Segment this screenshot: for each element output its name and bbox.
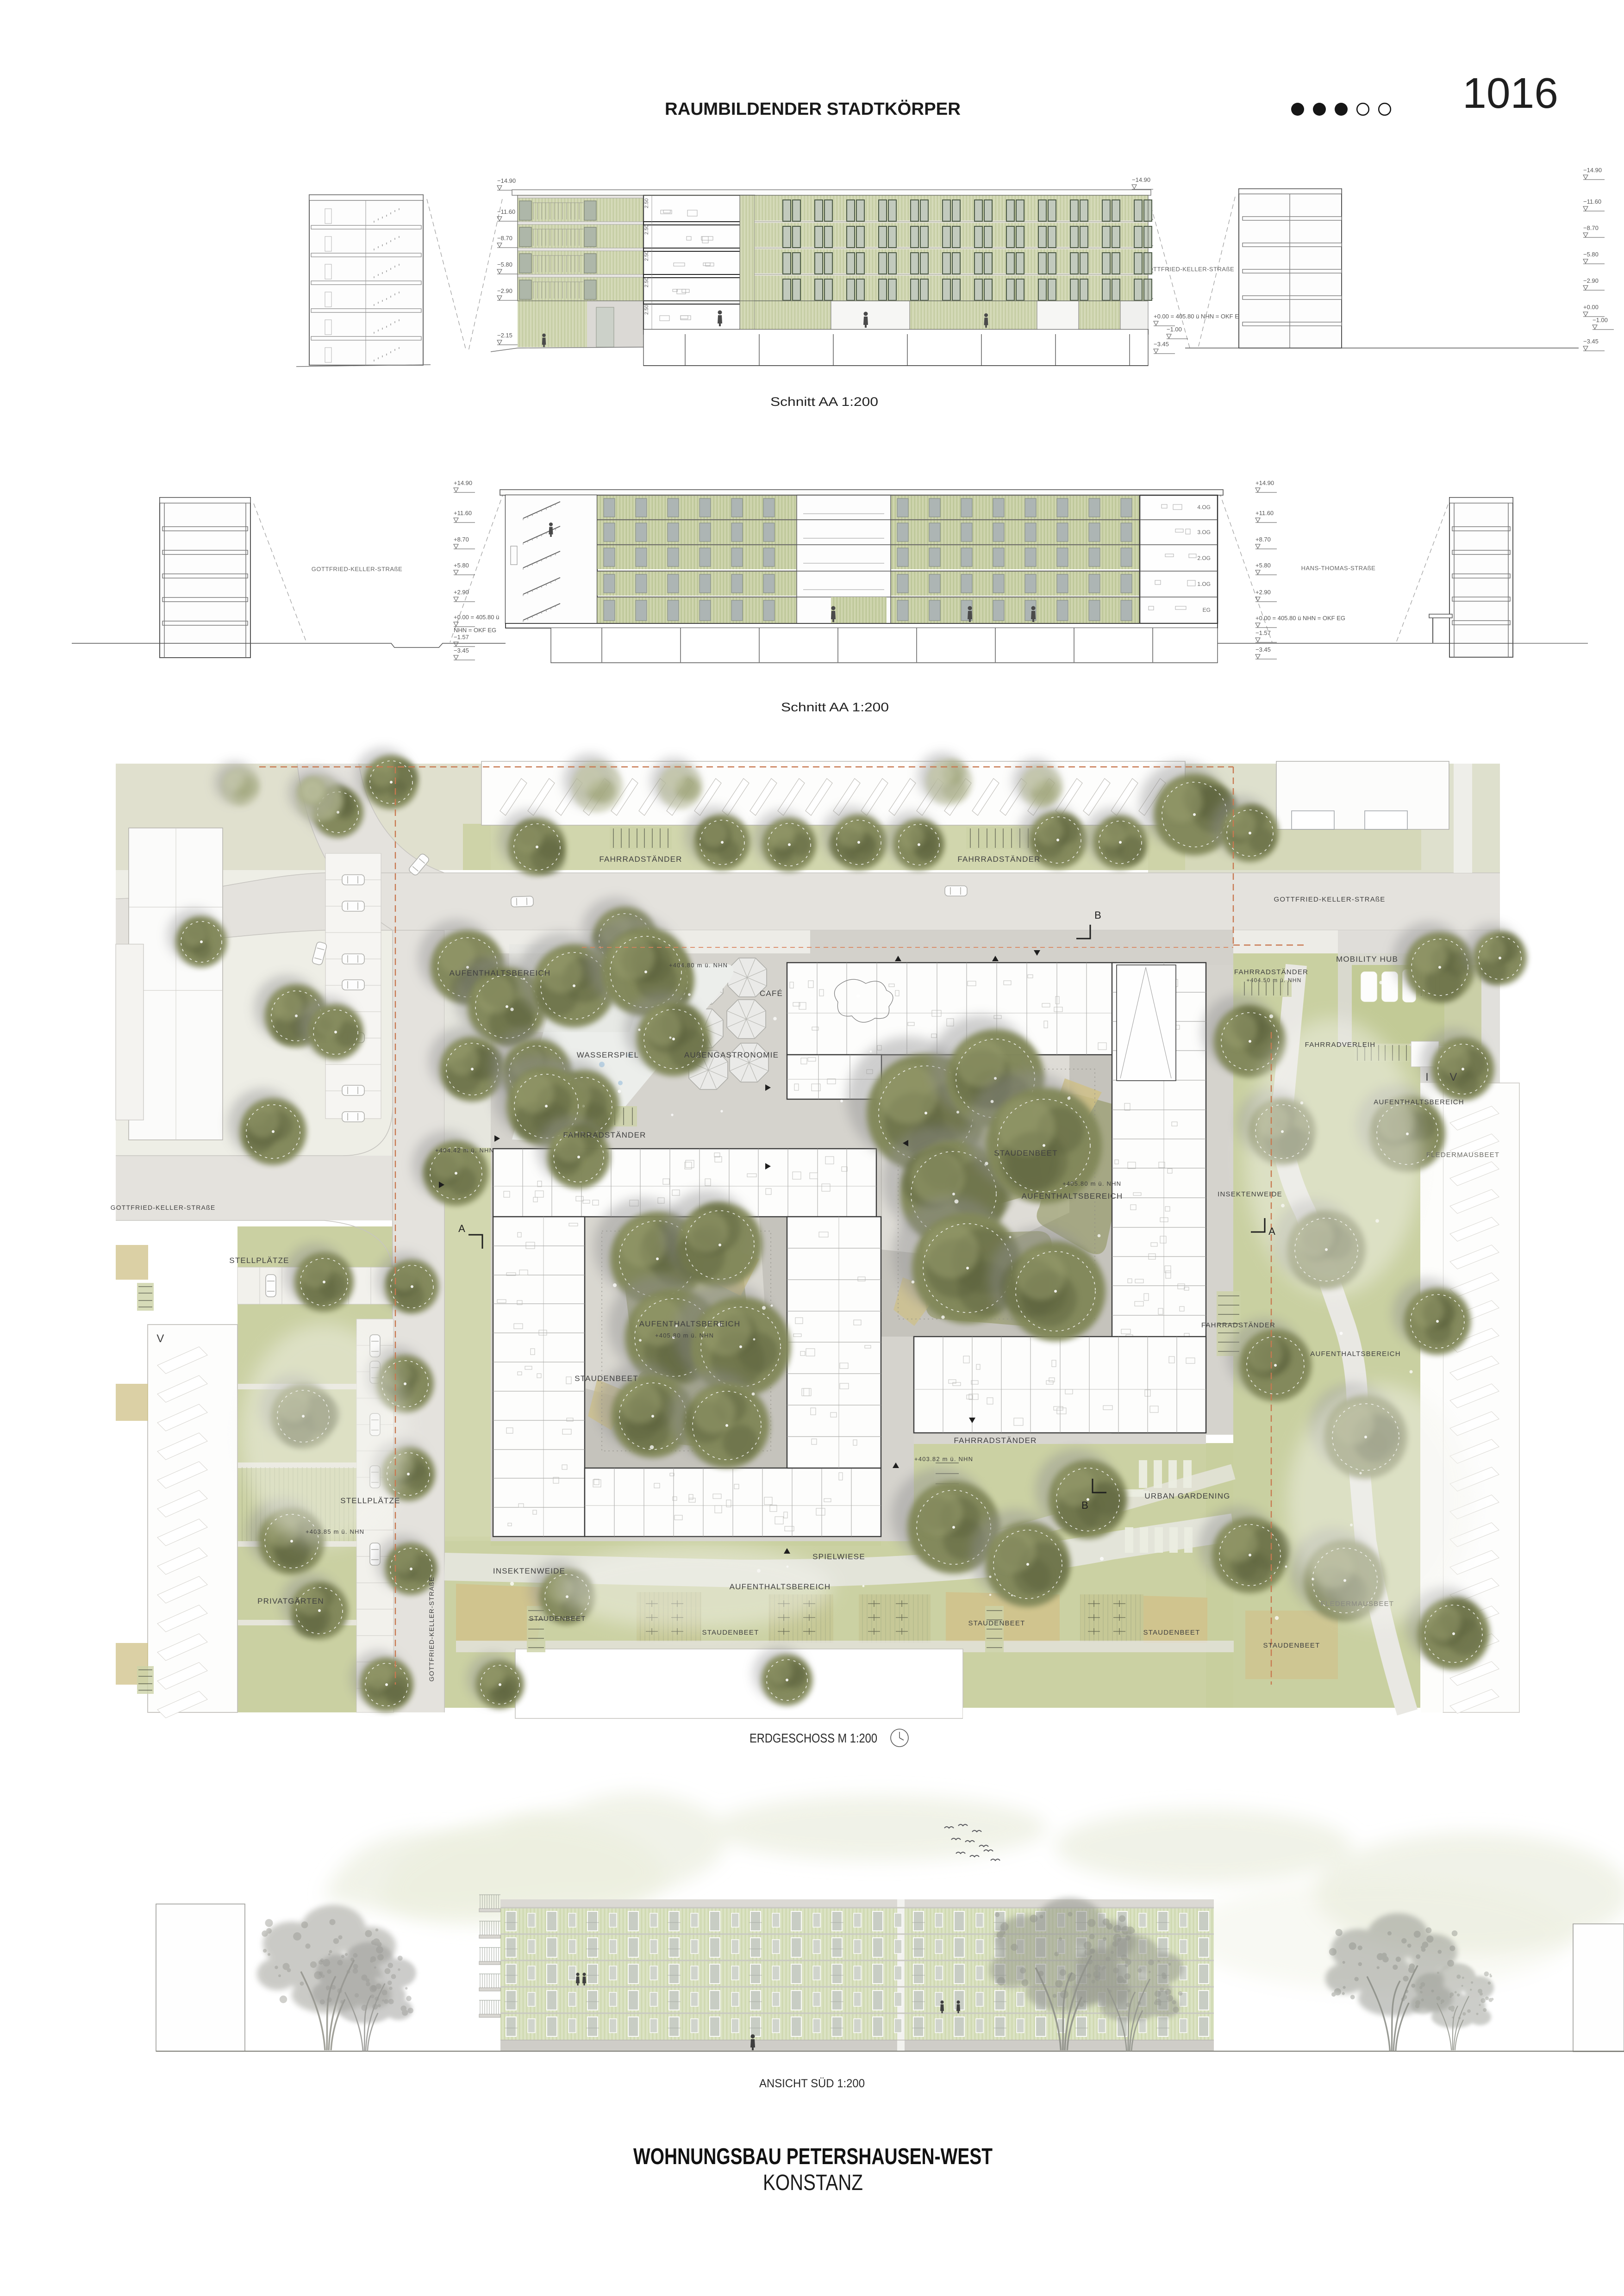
svg-text:2.50: 2.50 xyxy=(644,225,650,235)
svg-text:+404.50 m ü. NHN: +404.50 m ü. NHN xyxy=(1247,977,1302,983)
svg-text:INSEKTENWEIDE: INSEKTENWEIDE xyxy=(1218,1190,1282,1198)
svg-text:−14.90: −14.90 xyxy=(1132,176,1150,183)
svg-text:+404.80 m ü. NHN: +404.80 m ü. NHN xyxy=(669,962,728,969)
svg-text:V: V xyxy=(1449,1071,1457,1083)
svg-text:3.OG: 3.OG xyxy=(1197,529,1211,535)
svg-text:−1.57: −1.57 xyxy=(1255,629,1271,636)
svg-text:−11.60: −11.60 xyxy=(497,208,515,215)
svg-text:RAUMBILDENDER STADTKÖRPER: RAUMBILDENDER STADTKÖRPER xyxy=(665,99,961,119)
svg-text:FAHRRADSTÄNDER: FAHRRADSTÄNDER xyxy=(1201,1321,1275,1329)
svg-text:MOBILITY HUB: MOBILITY HUB xyxy=(1336,955,1398,964)
svg-text:SPIELWIESE: SPIELWIESE xyxy=(812,1552,865,1561)
svg-text:+8.70: +8.70 xyxy=(454,536,469,543)
svg-text:URBAN GARDENING: URBAN GARDENING xyxy=(1144,1492,1230,1500)
svg-text:−8.70: −8.70 xyxy=(1583,224,1599,231)
svg-text:4.OG: 4.OG xyxy=(1197,504,1211,510)
svg-text:−14.90: −14.90 xyxy=(1583,167,1602,174)
svg-text:A: A xyxy=(458,1223,466,1234)
svg-text:2.OG: 2.OG xyxy=(1197,555,1211,561)
svg-text:AUFENTHALTSBEREICH: AUFENTHALTSBEREICH xyxy=(1374,1098,1464,1106)
svg-text:AUFENTHALTSBEREICH: AUFENTHALTSBEREICH xyxy=(1310,1350,1401,1358)
svg-text:A: A xyxy=(1268,1226,1276,1237)
svg-text:+14.90: +14.90 xyxy=(454,479,472,486)
svg-text:STAUDENBEET: STAUDENBEET xyxy=(529,1615,586,1623)
svg-text:CAFÉ: CAFÉ xyxy=(760,989,783,998)
svg-text:ERDGESCHOSS M 1:200: ERDGESCHOSS M 1:200 xyxy=(750,1731,877,1745)
svg-text:+403.85 m ü. NHN: +403.85 m ü. NHN xyxy=(306,1528,364,1535)
svg-text:1.OG: 1.OG xyxy=(1197,581,1211,587)
svg-text:WOHNUNGSBAU PETERSHAUSEN-WEST: WOHNUNGSBAU PETERSHAUSEN-WEST xyxy=(633,2144,993,2169)
svg-text:+11.60: +11.60 xyxy=(1255,510,1274,516)
svg-text:+0.00: +0.00 xyxy=(1583,304,1599,311)
svg-text:−1.57: −1.57 xyxy=(454,634,469,641)
svg-text:−14.90: −14.90 xyxy=(497,177,516,184)
svg-text:+405.80 m ü. NHN: +405.80 m ü. NHN xyxy=(655,1332,714,1339)
svg-text:−2.15: −2.15 xyxy=(497,332,512,339)
svg-text:AUFENTHALTSBEREICH: AUFENTHALTSBEREICH xyxy=(730,1582,831,1591)
svg-text:FAHRRADSTÄNDER: FAHRRADSTÄNDER xyxy=(599,855,682,864)
svg-text:+8.70: +8.70 xyxy=(1255,536,1271,543)
svg-text:−1.00: −1.00 xyxy=(1167,326,1182,333)
svg-text:−3.45: −3.45 xyxy=(1583,338,1599,345)
svg-text:+0.00 = 405.80 ü NHN = OKF EG: +0.00 = 405.80 ü NHN = OKF EG xyxy=(1154,313,1243,320)
svg-text:+0.00 = 405.80 ü NHN = OKF EG: +0.00 = 405.80 ü NHN = OKF EG xyxy=(1255,615,1345,622)
svg-text:−5.80: −5.80 xyxy=(1583,251,1599,258)
svg-text:AUFENTHALTSBEREICH: AUFENTHALTSBEREICH xyxy=(1022,1192,1123,1201)
svg-text:AUFENTHALTSBEREICH: AUFENTHALTSBEREICH xyxy=(639,1319,741,1328)
svg-text:I: I xyxy=(1425,1071,1429,1083)
svg-text:FAHRRADSTÄNDER: FAHRRADSTÄNDER xyxy=(563,1131,646,1139)
svg-text:2.50: 2.50 xyxy=(644,305,650,315)
svg-text:B: B xyxy=(1081,1500,1089,1511)
svg-text:FAHRRADSTÄNDER: FAHRRADSTÄNDER xyxy=(1234,968,1308,976)
svg-text:−3.45: −3.45 xyxy=(1255,646,1271,653)
svg-text:−1.00: −1.00 xyxy=(1593,317,1608,324)
svg-text:NHN = OKF EG: NHN = OKF EG xyxy=(454,627,496,634)
svg-text:AUßENGASTRONOMIE: AUßENGASTRONOMIE xyxy=(684,1051,779,1059)
svg-text:FAHRRADVERLEIH: FAHRRADVERLEIH xyxy=(1305,1041,1376,1049)
svg-text:STAUDENBEET: STAUDENBEET xyxy=(994,1149,1058,1157)
svg-text:−5.80: −5.80 xyxy=(497,261,512,268)
svg-text:2.50: 2.50 xyxy=(644,278,650,287)
svg-text:+403.82 m ü. NHN: +403.82 m ü. NHN xyxy=(914,1456,973,1462)
svg-text:−2.90: −2.90 xyxy=(1583,277,1599,284)
svg-text:Schnitt AA 1:200: Schnitt AA 1:200 xyxy=(781,700,889,714)
svg-text:−2.90: −2.90 xyxy=(497,287,512,294)
svg-text:GOTTFRIED-KELLER-STRAßE: GOTTFRIED-KELLER-STRAßE xyxy=(428,1577,435,1682)
svg-text:STELLPLÄTZE: STELLPLÄTZE xyxy=(229,1256,289,1265)
svg-text:STAUDENBEET: STAUDENBEET xyxy=(702,1629,759,1636)
svg-text:EG: EG xyxy=(1203,607,1211,613)
svg-text:+405.80 m ü. NHN: +405.80 m ü. NHN xyxy=(1062,1180,1121,1187)
svg-text:FLEDERMAUSBEET: FLEDERMAUSBEET xyxy=(1426,1151,1500,1159)
svg-text:Schnitt AA 1:200: Schnitt AA 1:200 xyxy=(770,395,878,409)
svg-text:−3.45: −3.45 xyxy=(454,647,469,654)
svg-text:GOTTFRIED-KELLER-STRAßE: GOTTFRIED-KELLER-STRAßE xyxy=(111,1204,216,1211)
svg-text:2.50: 2.50 xyxy=(644,251,650,261)
svg-text:HANS-THOMAS-STRAßE: HANS-THOMAS-STRAßE xyxy=(1301,565,1376,572)
svg-text:1016: 1016 xyxy=(1462,69,1558,117)
svg-text:STAUDENBEET: STAUDENBEET xyxy=(575,1374,638,1383)
svg-text:+2.90: +2.90 xyxy=(454,589,469,596)
svg-text:STAUDENBEET: STAUDENBEET xyxy=(1143,1629,1200,1636)
svg-text:ANSICHT SÜD 1:200: ANSICHT SÜD 1:200 xyxy=(759,2077,865,2090)
svg-text:GOTTFRIED-KELLER-STRAßE: GOTTFRIED-KELLER-STRAßE xyxy=(312,566,402,572)
svg-text:+5.80: +5.80 xyxy=(454,562,469,569)
svg-text:+5.80: +5.80 xyxy=(1255,562,1271,569)
svg-text:2.50: 2.50 xyxy=(644,199,650,208)
svg-text:AUFENTHALTSBEREICH: AUFENTHALTSBEREICH xyxy=(450,969,551,977)
svg-text:+11.60: +11.60 xyxy=(454,510,472,516)
svg-text:+404.42 m ü. NHN: +404.42 m ü. NHN xyxy=(435,1147,494,1154)
svg-text:−11.60: −11.60 xyxy=(1583,198,1601,205)
svg-text:GOTTFRIED-KELLER-STRAßE: GOTTFRIED-KELLER-STRAßE xyxy=(1274,896,1386,903)
svg-text:GOTTFRIED-KELLER-STRAßE: GOTTFRIED-KELLER-STRAßE xyxy=(1143,266,1234,273)
svg-text:PRIVATGÄRTEN: PRIVATGÄRTEN xyxy=(257,1597,324,1605)
svg-text:+14.90: +14.90 xyxy=(1255,479,1274,486)
svg-text:STAUDENBEET: STAUDENBEET xyxy=(1263,1642,1320,1649)
svg-text:STAUDENBEET: STAUDENBEET xyxy=(968,1619,1025,1627)
svg-text:+2.90: +2.90 xyxy=(1255,589,1271,596)
svg-text:−8.70: −8.70 xyxy=(497,235,512,242)
svg-text:KONSTANZ: KONSTANZ xyxy=(763,2171,863,2195)
svg-text:FAHRRADSTÄNDER: FAHRRADSTÄNDER xyxy=(954,1436,1037,1445)
svg-text:STELLPLÄTZE: STELLPLÄTZE xyxy=(340,1496,400,1505)
svg-text:B: B xyxy=(1094,909,1102,921)
svg-text:FAHRRADSTÄNDER: FAHRRADSTÄNDER xyxy=(957,855,1040,864)
svg-text:−3.45: −3.45 xyxy=(1154,341,1169,348)
svg-text:WASSERSPIEL: WASSERSPIEL xyxy=(577,1051,639,1059)
svg-text:INSEKTENWEIDE: INSEKTENWEIDE xyxy=(493,1567,565,1575)
svg-text:V: V xyxy=(156,1332,164,1345)
svg-text:FLEDERMAUSBEET: FLEDERMAUSBEET xyxy=(1321,1600,1394,1608)
svg-text:+0.00 = 405.80 ü: +0.00 = 405.80 ü xyxy=(454,614,499,621)
